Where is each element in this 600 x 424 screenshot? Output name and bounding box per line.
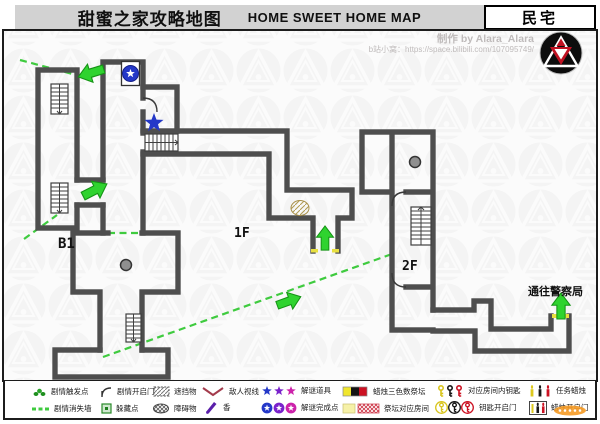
puzzle-complete-icon [261,402,297,414]
legend-item: 障碍物 [152,402,197,415]
legend-label: 任务蜡烛 [556,385,586,396]
legend-item: 解谜完成点 [261,401,339,414]
legend-label: 遮挡物 [174,386,197,397]
legend-label: 障碍物 [174,403,197,414]
legend-label: 敌人视线 [229,386,259,397]
legend-label: 剧情消失墙 [54,403,92,414]
story-door-icon [100,386,113,398]
legend-item: 躲藏点 [101,402,139,415]
staircase-cross-room [126,314,141,342]
floor-label-1f: 1F [234,226,250,241]
legend-item: 香 [205,401,231,414]
legend-label: 剧情触发点 [51,386,89,397]
obstacle-icon [291,201,309,216]
legend-label: 蜡烛三色数祭坛 [373,386,426,397]
legend-label: 解谜完成点 [301,402,339,413]
cover-icon [153,386,170,397]
legend-item: 解谜道具 [261,384,331,397]
candle-door-icon [529,401,547,415]
gray-dot-marker [410,157,421,168]
staircase-1f-horizontal [145,134,178,151]
hide-spot-icon [101,403,112,414]
obstacle-icon [152,403,170,414]
vanishing-wall-icon [32,406,50,412]
room-keys-icon [437,385,464,397]
incense-icon [205,401,219,414]
legend-item: 任务蜡烛 [529,384,586,397]
legend-item: 剧情开启门 [100,385,155,398]
legend-item: 剧情消失墙 [32,402,92,415]
staircase-b1-top [51,84,68,114]
legend-label: 祭坛对应房间 [384,403,429,414]
legend-item: 敌人视线 [201,385,259,398]
yellow-door-tick [332,249,339,253]
puzzle-complete-marker [122,62,140,86]
floor-label-b1: B1 [58,236,75,252]
watermark-link: b站小窝：https://space.bilibili.com/10709574… [369,44,534,55]
staircase-2f [411,207,431,245]
floor-plan-map: B1 1F 2F 通往警察局 [0,0,600,424]
legend-item: 蜡烛三色数祭坛 [342,385,426,398]
legend-strip: 剧情触发点 剧情开启门 遮挡物 敌人视线 解谜道具 [3,381,597,420]
story-trigger-icon [32,387,47,397]
key-door-icon [435,401,475,414]
enemy-sight-icon [201,386,225,397]
gray-dot-marker [121,260,132,271]
site-watermark-icon [553,405,587,416]
author-logo-icon [540,32,582,74]
puzzle-item-stars-icon [261,385,297,397]
legend-label: 剧情开启门 [117,386,155,397]
legend-item: 遮挡物 [153,385,197,398]
legend-item: 祭坛对应房间 [342,402,429,415]
floor-label-2f: 2F [402,259,418,274]
legend-item: 对应房间内钥匙 [437,384,521,397]
legend-label: 对应房间内钥匙 [468,385,521,396]
altar-room-icon [342,403,380,414]
legend-label: 解谜道具 [301,385,331,396]
legend-label: 香 [223,402,231,413]
staircase-b1-bottom [51,183,68,213]
screenshot-root: 甜蜜之家攻略地图 HOME SWEET HOME MAP 民宅 [0,0,600,424]
yellow-door-tick [311,249,318,253]
task-candles-icon [529,385,552,397]
legend-label: 躲藏点 [116,403,139,414]
exit-label: 通往警察局 [528,284,583,298]
altar-tricolor-icon [342,386,369,397]
legend-item: 钥匙开启门 [435,401,517,414]
legend-item: 剧情触发点 [32,385,89,398]
legend-label: 钥匙开启门 [479,402,517,413]
